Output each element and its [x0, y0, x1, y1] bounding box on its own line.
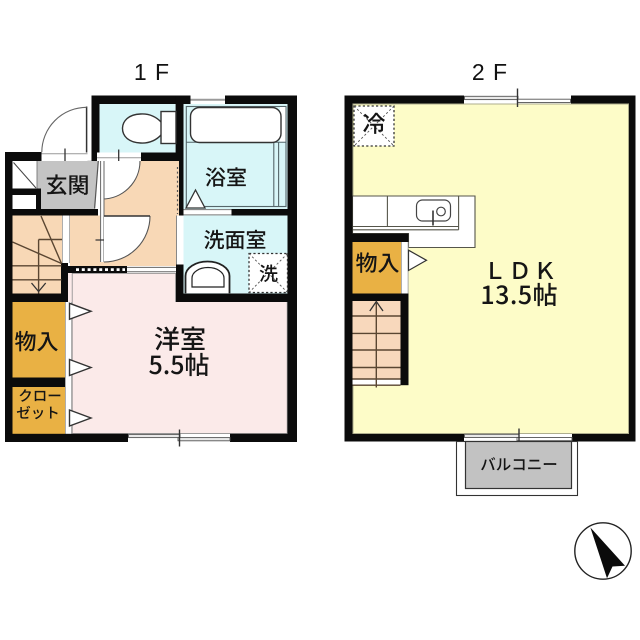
svg-text:1 F: 1 F [134, 59, 170, 85]
svg-text:2 F: 2 F [472, 59, 508, 85]
